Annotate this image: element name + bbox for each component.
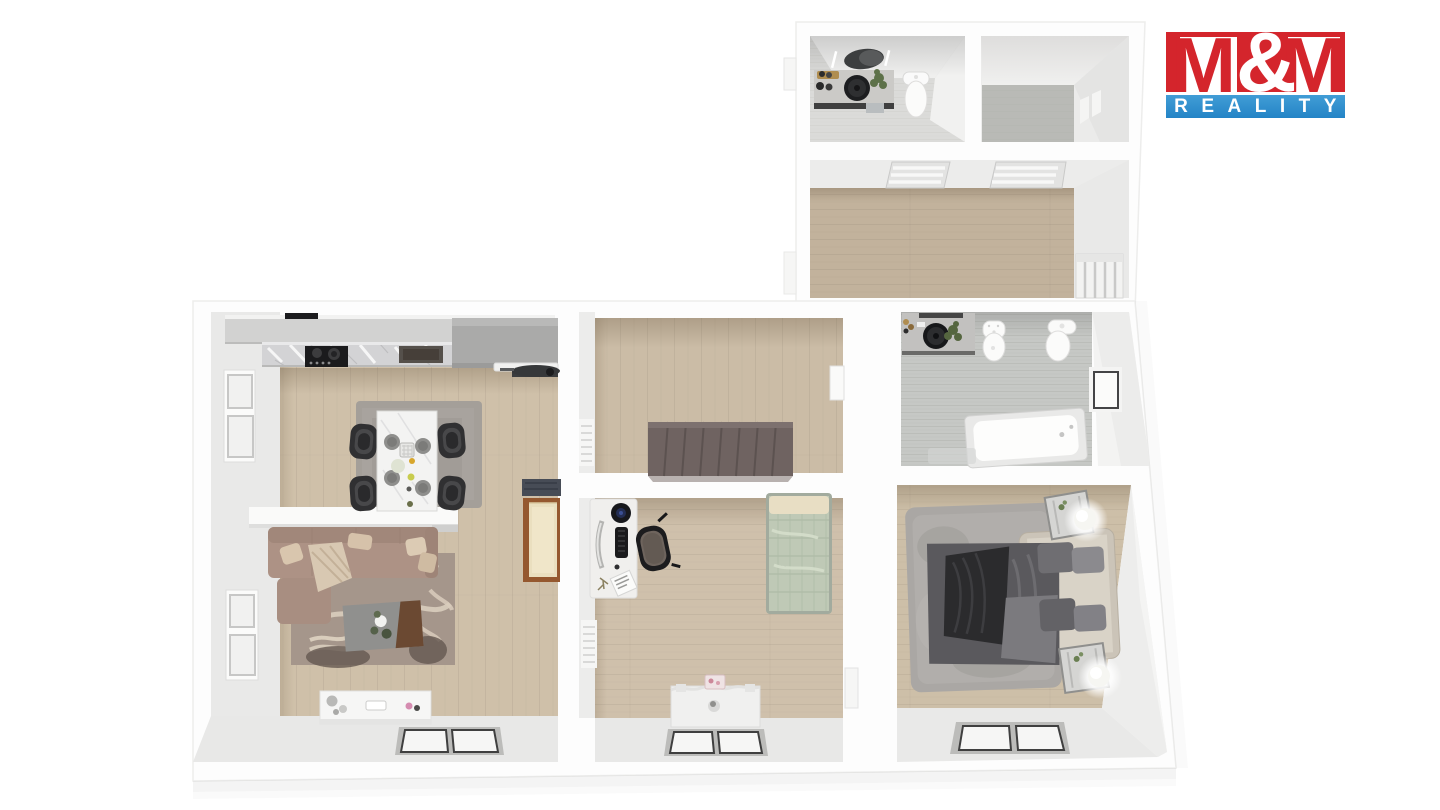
svg-text:REALITY: REALITY: [1174, 96, 1350, 117]
svg-text:&: &: [1236, 15, 1297, 109]
